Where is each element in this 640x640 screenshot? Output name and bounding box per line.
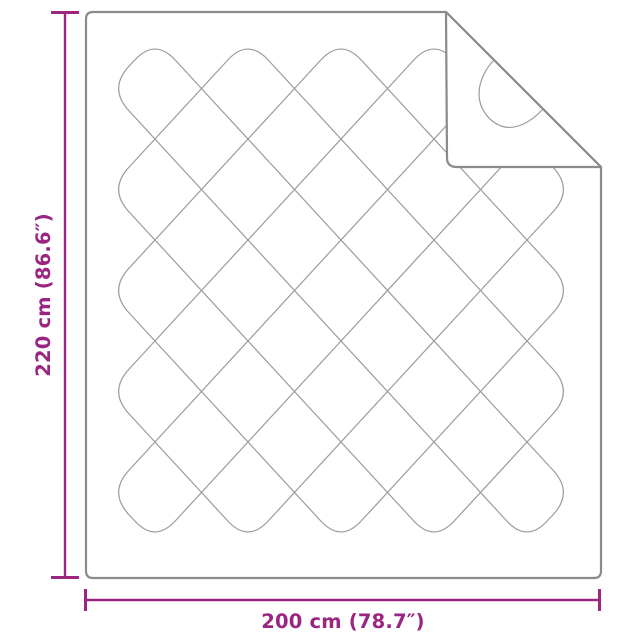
blanket-dimension-diagram: 220 cm (86.6″) 200 cm (78.7″) xyxy=(0,0,640,640)
height-dimension-label: 220 cm (86.6″) xyxy=(32,213,55,377)
width-dimension: 200 cm (78.7″) xyxy=(85,589,600,633)
height-dimension: 220 cm (86.6″) xyxy=(32,12,79,578)
diagram-canvas: 220 cm (86.6″) 200 cm (78.7″) xyxy=(0,0,640,640)
folded-corner xyxy=(446,12,601,167)
fold-flap xyxy=(446,12,601,167)
blanket xyxy=(86,12,601,578)
width-dimension-label: 200 cm (78.7″) xyxy=(261,610,425,633)
